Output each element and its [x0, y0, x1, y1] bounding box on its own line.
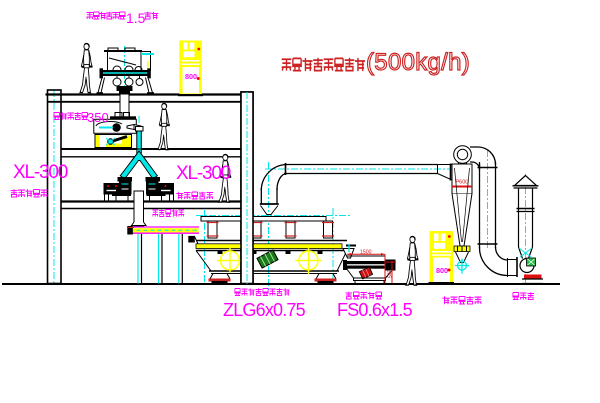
svg-text:800: 800 — [436, 266, 448, 275]
svg-text:1.5: 1.5 — [126, 10, 146, 26]
svg-text:XL-300: XL-300 — [176, 163, 231, 184]
svg-text:XL-300: XL-300 — [13, 162, 68, 183]
svg-text:(500kg/h): (500kg/h) — [366, 49, 470, 76]
svg-text:800: 800 — [185, 72, 197, 81]
svg-text:350: 350 — [87, 110, 109, 125]
svg-text:545: 545 — [388, 269, 394, 278]
svg-text:FS0.6x1.5: FS0.6x1.5 — [337, 300, 413, 320]
svg-text:ZLG6x0.75: ZLG6x0.75 — [223, 300, 306, 320]
svg-text:1500: 1500 — [360, 250, 372, 256]
svg-text:P600: P600 — [456, 180, 469, 186]
